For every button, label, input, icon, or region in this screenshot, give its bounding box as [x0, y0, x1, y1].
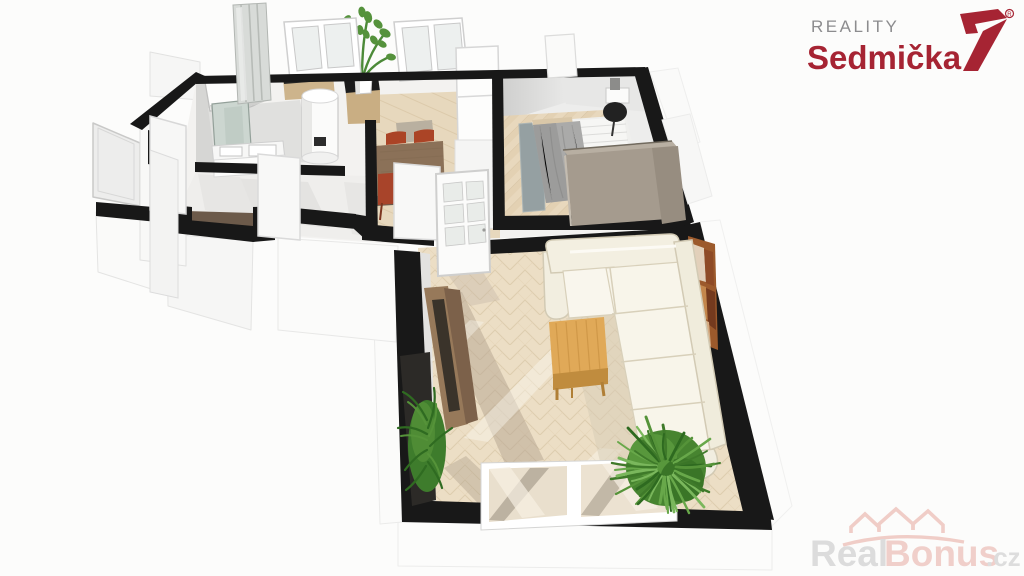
svg-text:.cz: .cz [986, 542, 1021, 572]
svg-text:Real: Real [810, 533, 888, 574]
svg-text:Sedmička: Sedmička [807, 39, 962, 76]
svg-text:Bonus: Bonus [884, 533, 999, 574]
svg-text:REALITY: REALITY [811, 17, 899, 36]
svg-text:R: R [1007, 12, 1012, 18]
